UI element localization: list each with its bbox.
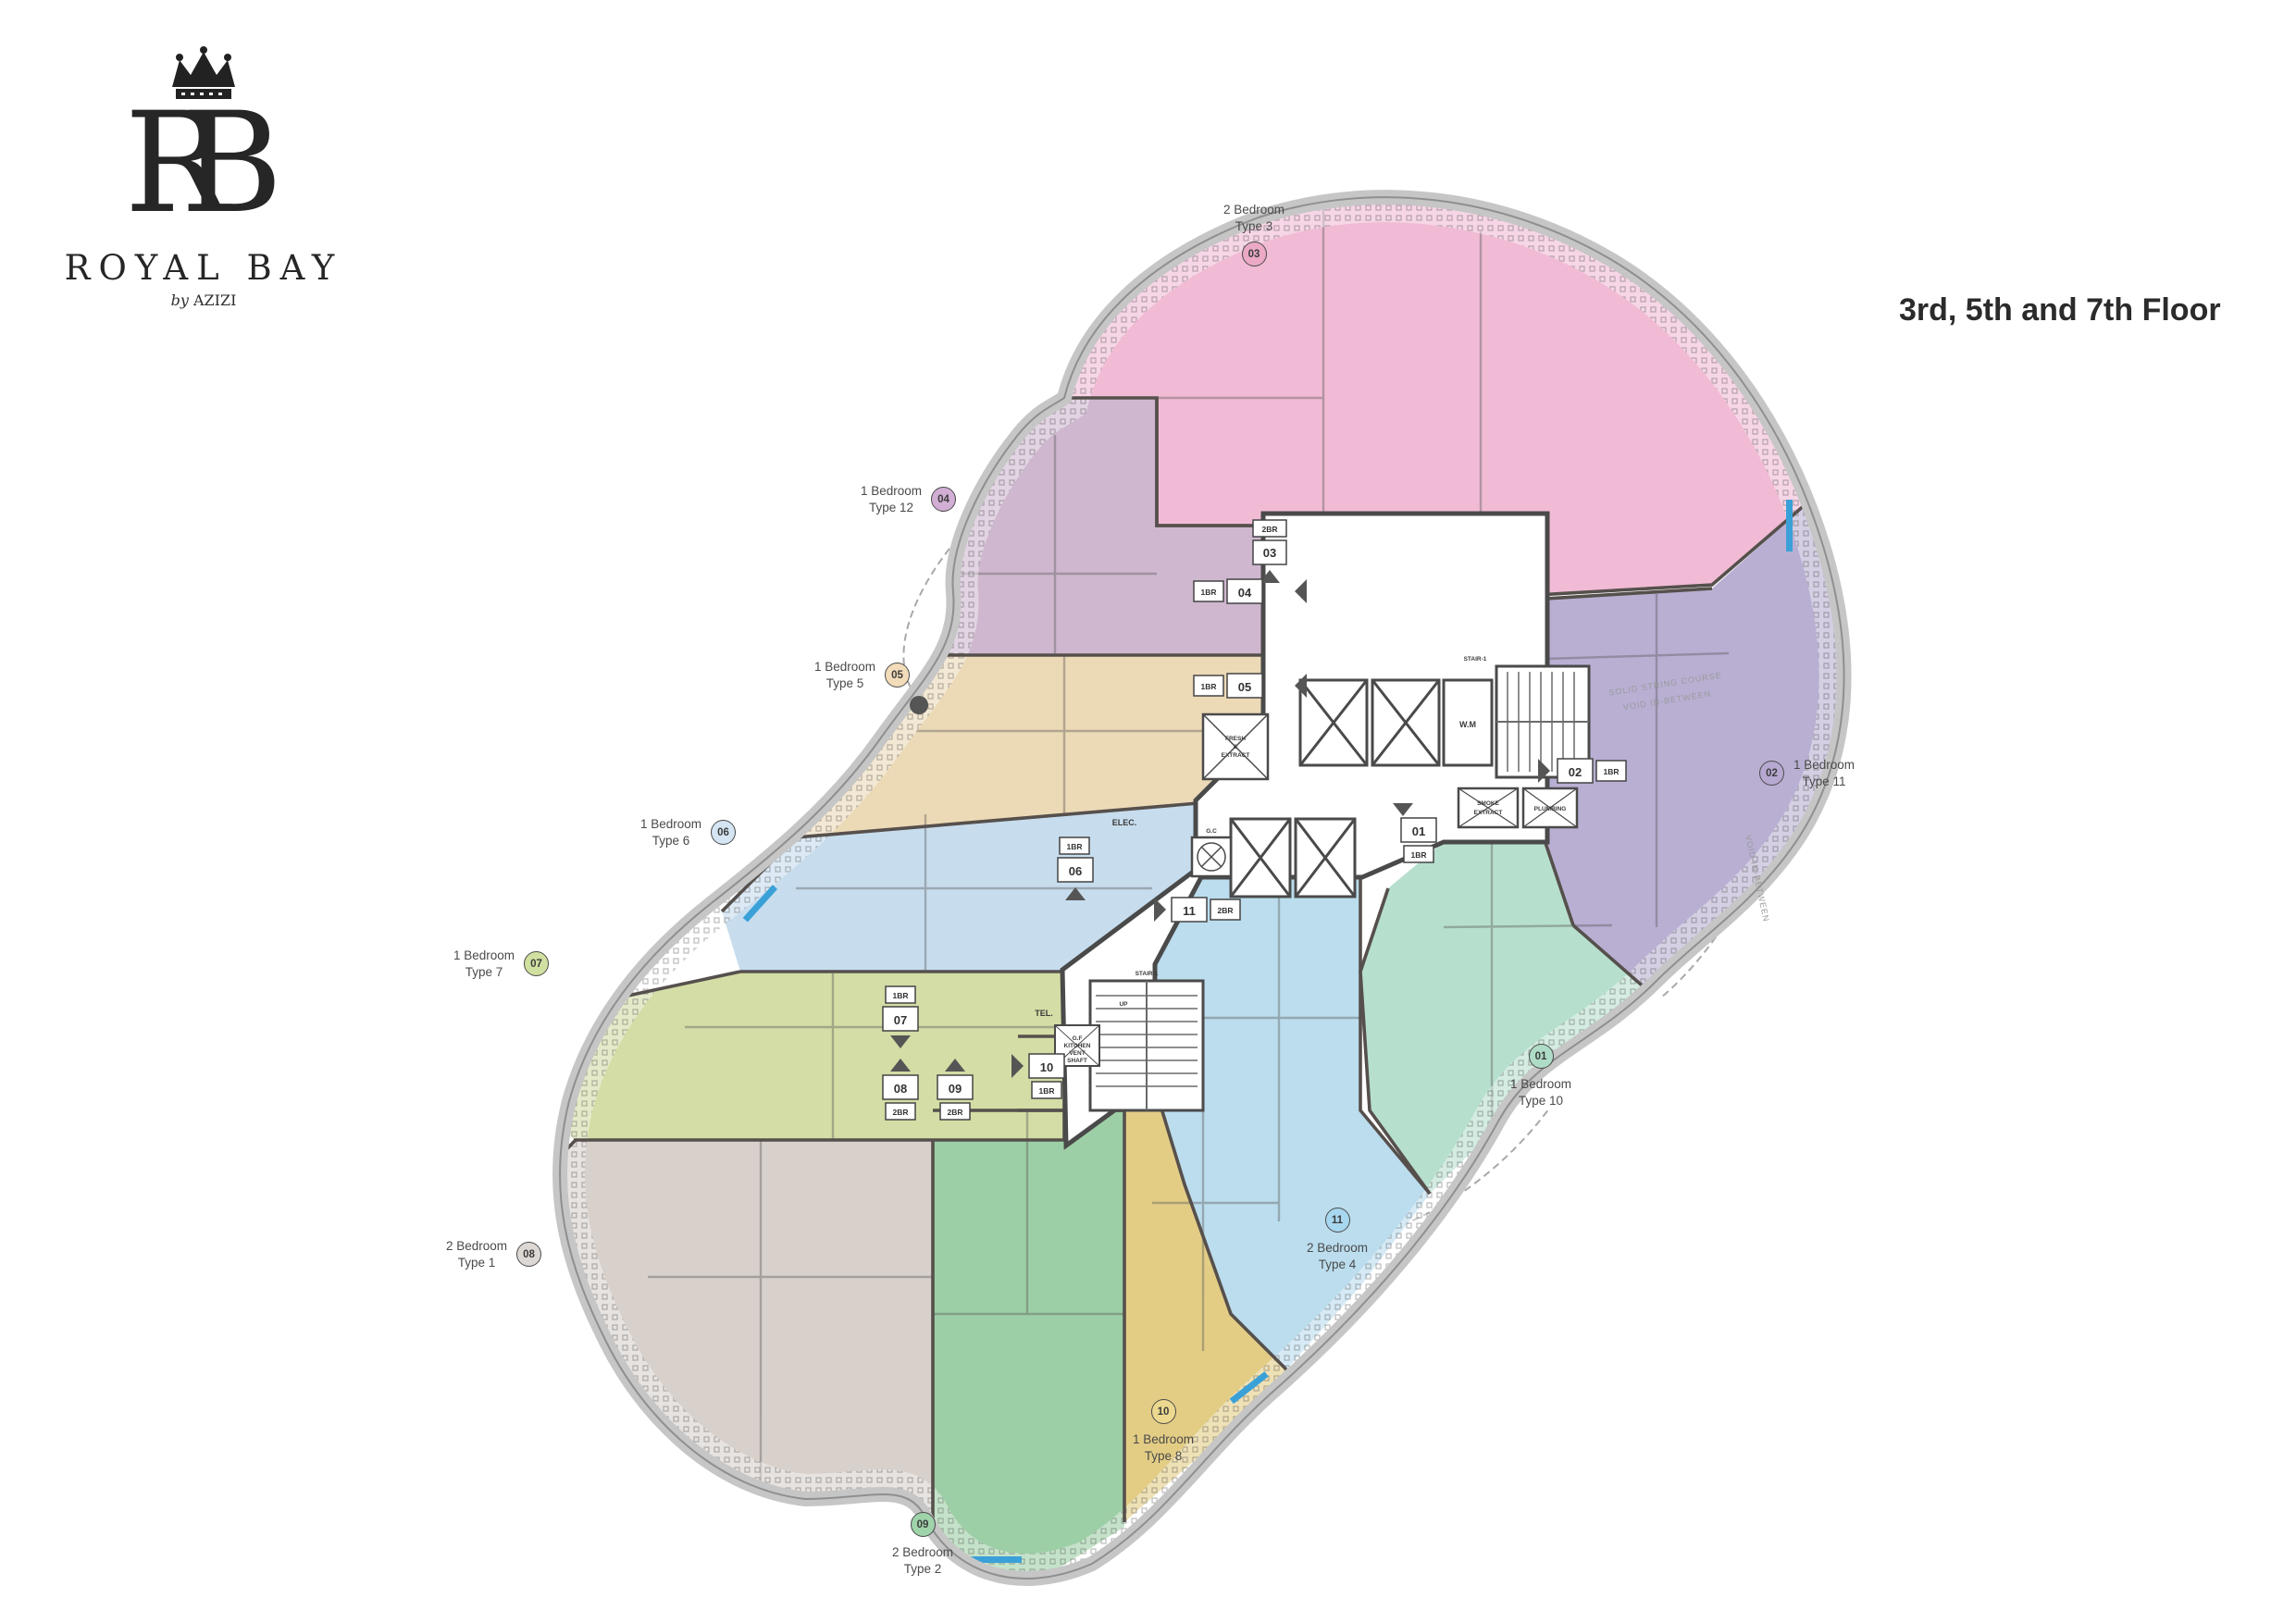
- unit-badge-05[interactable]: 05: [885, 663, 910, 688]
- svg-text:&: &: [1234, 744, 1238, 750]
- unit-callout-09: 09 2 BedroomType 2: [863, 1512, 983, 1577]
- svg-text:01: 01: [1412, 824, 1425, 838]
- svg-text:W.M: W.M: [1459, 720, 1476, 729]
- svg-text:G.F: G.F: [1073, 1035, 1083, 1042]
- unit-callout-label: 1 BedroomType 7: [453, 948, 515, 980]
- unit-callout-label: 1 BedroomType 5: [814, 659, 875, 691]
- svg-text:2BR: 2BR: [1261, 525, 1277, 534]
- unit-badge-02[interactable]: 02: [1759, 761, 1784, 786]
- unit-badge-06[interactable]: 06: [711, 820, 736, 845]
- unit-callout-04: 1 BedroomType 12 04: [861, 483, 956, 515]
- svg-text:1BR: 1BR: [1066, 842, 1082, 851]
- svg-text:1BR: 1BR: [1603, 767, 1619, 776]
- unit-callout-05: 1 BedroomType 5 05: [814, 659, 910, 691]
- svg-text:04: 04: [1238, 586, 1252, 600]
- stair-lower: STAIR-1 UP: [1090, 971, 1203, 1110]
- svg-text:1BR: 1BR: [1410, 850, 1426, 860]
- svg-text:03: 03: [1263, 546, 1276, 560]
- svg-text:2BR: 2BR: [1217, 906, 1233, 915]
- svg-text:1BR: 1BR: [1200, 682, 1216, 691]
- svg-text:EXTRACT: EXTRACT: [1474, 810, 1503, 816]
- unit-badge-04[interactable]: 04: [931, 487, 956, 512]
- unit-callout-11: 11 2 BedroomType 4: [1277, 1208, 1397, 1272]
- unit-callout-08: 2 BedroomType 1 08: [446, 1238, 541, 1270]
- unit-badge-09[interactable]: 09: [911, 1512, 936, 1537]
- svg-text:2BR: 2BR: [892, 1108, 908, 1117]
- unit-callout-label: 2 BedroomType 2: [892, 1544, 953, 1577]
- svg-text:KITCHEN: KITCHEN: [1064, 1043, 1091, 1049]
- unit-callout-06: 1 BedroomType 6 06: [640, 816, 736, 849]
- unit-callout-07: 1 BedroomType 7 07: [453, 948, 549, 980]
- svg-text:10: 10: [1040, 1060, 1053, 1074]
- unit-badge-11[interactable]: 11: [1325, 1208, 1350, 1233]
- svg-text:VENT: VENT: [1069, 1050, 1085, 1057]
- svg-text:09: 09: [949, 1082, 962, 1096]
- dot-marker: [910, 696, 928, 714]
- label-elec: ELEC.: [1112, 818, 1137, 827]
- svg-text:SMOKE: SMOKE: [1477, 800, 1500, 807]
- svg-text:11: 11: [1183, 904, 1196, 918]
- unit-badge-10[interactable]: 10: [1151, 1399, 1176, 1424]
- svg-text:FRESH: FRESH: [1225, 736, 1246, 742]
- svg-text:1BR: 1BR: [892, 991, 908, 1000]
- svg-text:08: 08: [894, 1082, 907, 1096]
- unit-callout-label: 2 BedroomType 1: [446, 1238, 507, 1270]
- svg-text:EXTRACT: EXTRACT: [1222, 752, 1250, 759]
- floorplan-drawing: W.M STAIR-1 STAIR-1 UP FRESH & EXTRACT: [0, 0, 2296, 1623]
- svg-text:1BR: 1BR: [1200, 588, 1216, 597]
- svg-text:UP: UP: [1119, 1001, 1128, 1008]
- unit-callout-label: 1 BedroomType 10: [1510, 1076, 1571, 1109]
- svg-text:PLUMBING: PLUMBING: [1534, 806, 1567, 812]
- svg-text:STAIR-1: STAIR-1: [1464, 656, 1487, 663]
- unit-callout-03: 2 BedroomType 3 03: [1194, 202, 1314, 266]
- unit-badge-07[interactable]: 07: [524, 951, 549, 976]
- label-tel: TEL.: [1035, 1009, 1053, 1018]
- svg-text:1BR: 1BR: [1038, 1086, 1054, 1096]
- svg-text:SHAFT: SHAFT: [1067, 1058, 1087, 1064]
- unit-callout-01: 01 1 BedroomType 10: [1476, 1044, 1606, 1109]
- floorplan-page: RB ROYAL BAY by AZIZI 3rd, 5th and 7th F…: [0, 0, 2296, 1623]
- unit-callout-label: 1 BedroomType 6: [640, 816, 701, 849]
- unit-callout-02: 02 1 BedroomType 11: [1759, 757, 1855, 789]
- unit-badge-01[interactable]: 01: [1529, 1044, 1554, 1069]
- unit-callout-label: 1 BedroomType 12: [861, 483, 922, 515]
- svg-text:06: 06: [1069, 864, 1082, 878]
- unit-callout-label: 2 BedroomType 4: [1307, 1240, 1368, 1272]
- unit-callout-10: 10 1 BedroomType 8: [1103, 1399, 1223, 1464]
- unit-callout-label: 1 BedroomType 8: [1133, 1431, 1194, 1464]
- wm-room: W.M: [1444, 680, 1492, 765]
- svg-text:07: 07: [894, 1013, 907, 1027]
- unit-callout-label: 2 BedroomType 3: [1223, 202, 1285, 234]
- svg-text:05: 05: [1238, 680, 1251, 694]
- unit-badge-08[interactable]: 08: [516, 1242, 541, 1267]
- svg-text:STAIR-1: STAIR-1: [1136, 971, 1159, 977]
- unit-callout-label: 1 BedroomType 11: [1793, 757, 1855, 789]
- svg-text:G.C: G.C: [1206, 828, 1217, 835]
- svg-text:2BR: 2BR: [947, 1108, 962, 1117]
- unit-badge-03[interactable]: 03: [1242, 242, 1267, 266]
- svg-text:02: 02: [1569, 765, 1582, 779]
